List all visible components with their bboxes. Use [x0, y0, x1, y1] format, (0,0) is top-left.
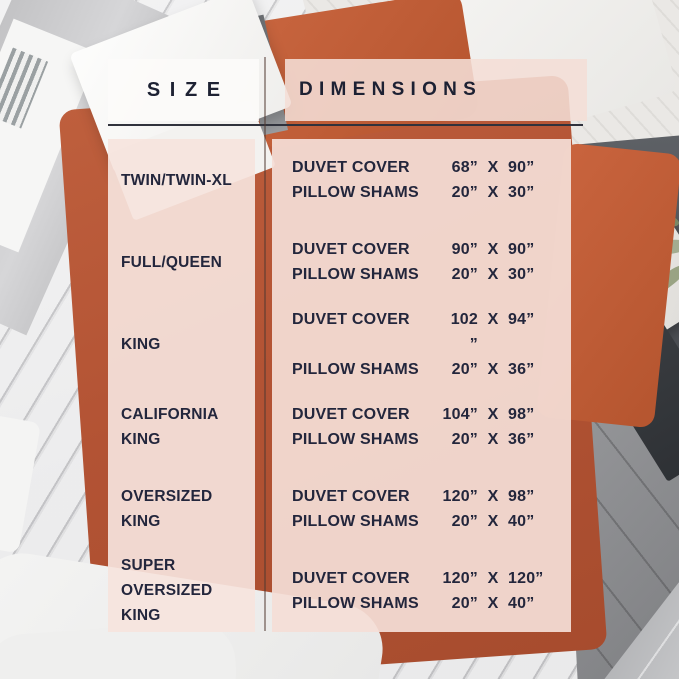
dimension-x-separator: X	[478, 427, 508, 452]
duvet-width-value: 120”	[440, 566, 478, 591]
size-cell-super-oversized-king: SUPER OVERSIZED KING	[108, 550, 255, 632]
bedding-size-chart-infographic: SIZE DIMENSIONS TWIN/TWIN-XL FULL/QUEEN …	[0, 0, 679, 679]
dimension-x-separator: X	[478, 591, 508, 616]
pillow-shams-label: PILLOW SHAMS	[292, 262, 440, 287]
pillow-shams-row: PILLOW SHAMS 20” X 40”	[292, 591, 571, 616]
dimensions-cell-king: DUVET COVER 102 ” X 94” PILLOW SHAMS 20”…	[272, 303, 571, 385]
pillow-shams-label: PILLOW SHAMS	[292, 357, 440, 382]
shams-width-value: 20”	[440, 509, 478, 534]
shams-width-value: 20”	[440, 591, 478, 616]
duvet-cover-label: DUVET COVER	[292, 155, 440, 180]
shams-width-value: 20”	[440, 180, 478, 205]
duvet-height-value: 90”	[508, 155, 570, 180]
duvet-width-value: 90”	[440, 237, 478, 262]
pillow-shams-label: PILLOW SHAMS	[292, 180, 440, 205]
shams-width-value: 20”	[440, 427, 478, 452]
shams-height-value: 40”	[508, 591, 570, 616]
dimension-x-separator: X	[478, 180, 508, 205]
pillow-shams-row: PILLOW SHAMS 20” X 36”	[292, 427, 571, 452]
duvet-height-value: 90”	[508, 237, 570, 262]
duvet-cover-row: DUVET COVER 120” X 98”	[292, 484, 571, 509]
column-divider-line	[264, 57, 266, 631]
header-underline	[108, 124, 583, 126]
pillow-shams-label: PILLOW SHAMS	[292, 509, 440, 534]
dimension-x-separator: X	[478, 566, 508, 591]
pillow-shams-label: PILLOW SHAMS	[292, 427, 440, 452]
duvet-cover-row: DUVET COVER 90” X 90”	[292, 237, 571, 262]
shams-height-value: 30”	[508, 180, 570, 205]
duvet-cover-label: DUVET COVER	[292, 484, 440, 509]
size-column-panel: TWIN/TWIN-XL FULL/QUEEN KING CALIFORNIA …	[108, 139, 255, 632]
shams-width-value: 20”	[440, 357, 478, 382]
duvet-height-value: 94”	[508, 307, 570, 332]
dimension-x-separator: X	[478, 402, 508, 427]
dimension-x-separator: X	[478, 509, 508, 534]
dimension-x-separator: X	[478, 357, 508, 382]
dimensions-cell-full-queen: DUVET COVER 90” X 90” PILLOW SHAMS 20” X…	[272, 221, 571, 303]
size-cell-twin: TWIN/TWIN-XL	[108, 139, 255, 221]
pillow-shams-row: PILLOW SHAMS 20” X 30”	[292, 262, 571, 287]
dimensions-cell-oversized-king: DUVET COVER 120” X 98” PILLOW SHAMS 20” …	[272, 468, 571, 550]
pillow-shams-row: PILLOW SHAMS 20” X 40”	[292, 509, 571, 534]
shams-width-value: 20”	[440, 262, 478, 287]
size-cell-full-queen: FULL/QUEEN	[108, 221, 255, 303]
duvet-width-value: 102 ”	[440, 307, 478, 357]
duvet-cover-label: DUVET COVER	[292, 566, 440, 591]
size-label: TWIN/TWIN-XL	[121, 168, 255, 193]
size-header-label: SIZE	[137, 79, 229, 102]
dimensions-cell-super-oversized-king: DUVET COVER 120” X 120” PILLOW SHAMS 20”…	[272, 550, 571, 632]
size-cell-king: KING	[108, 303, 255, 385]
size-cell-california-king: CALIFORNIA KING	[108, 386, 255, 468]
duvet-cover-label: DUVET COVER	[292, 237, 440, 262]
duvet-cover-row: DUVET COVER 102 ” X 94”	[292, 307, 571, 357]
size-label: FULL/QUEEN	[121, 250, 255, 275]
duvet-cover-row: DUVET COVER 68” X 90”	[292, 155, 571, 180]
duvet-height-value: 98”	[508, 484, 570, 509]
duvet-width-value: 104”	[440, 402, 478, 427]
dimensions-cell-twin: DUVET COVER 68” X 90” PILLOW SHAMS 20” X…	[272, 139, 571, 221]
duvet-cover-label: DUVET COVER	[292, 402, 440, 427]
dimensions-column-header: DIMENSIONS	[285, 59, 587, 121]
duvet-cover-row: DUVET COVER 120” X 120”	[292, 566, 571, 591]
dimension-x-separator: X	[478, 155, 508, 180]
size-label: CALIFORNIA	[121, 402, 255, 427]
duvet-height-value: 120”	[508, 566, 570, 591]
size-column-header: SIZE	[108, 59, 259, 121]
shams-height-value: 40”	[508, 509, 570, 534]
duvet-width-value: 68”	[440, 155, 478, 180]
dimension-x-separator: X	[478, 307, 508, 332]
duvet-cover-label: DUVET COVER	[292, 307, 440, 332]
size-label: KING	[121, 332, 255, 357]
dimensions-column-panel: DUVET COVER 68” X 90” PILLOW SHAMS 20” X…	[272, 139, 571, 632]
size-label: KING	[121, 427, 255, 452]
duvet-cover-row: DUVET COVER 104” X 98”	[292, 402, 571, 427]
pillow-shams-row: PILLOW SHAMS 20” X 30”	[292, 180, 571, 205]
shams-height-value: 36”	[508, 427, 570, 452]
dimension-x-separator: X	[478, 484, 508, 509]
pillow-shams-row: PILLOW SHAMS 20” X 36”	[292, 357, 571, 382]
shams-height-value: 30”	[508, 262, 570, 287]
pillow-shams-label: PILLOW SHAMS	[292, 591, 440, 616]
dimensions-header-label: DIMENSIONS	[299, 79, 482, 101]
shams-height-value: 36”	[508, 357, 570, 382]
size-label: OVERSIZED KING	[121, 578, 255, 628]
size-label: SUPER	[121, 553, 255, 578]
size-label: OVERSIZED KING	[121, 484, 255, 534]
size-cell-oversized-king: OVERSIZED KING	[108, 468, 255, 550]
duvet-width-value: 120”	[440, 484, 478, 509]
dimension-x-separator: X	[478, 237, 508, 262]
dimensions-cell-california-king: DUVET COVER 104” X 98” PILLOW SHAMS 20” …	[272, 386, 571, 468]
dimension-x-separator: X	[478, 262, 508, 287]
duvet-height-value: 98”	[508, 402, 570, 427]
